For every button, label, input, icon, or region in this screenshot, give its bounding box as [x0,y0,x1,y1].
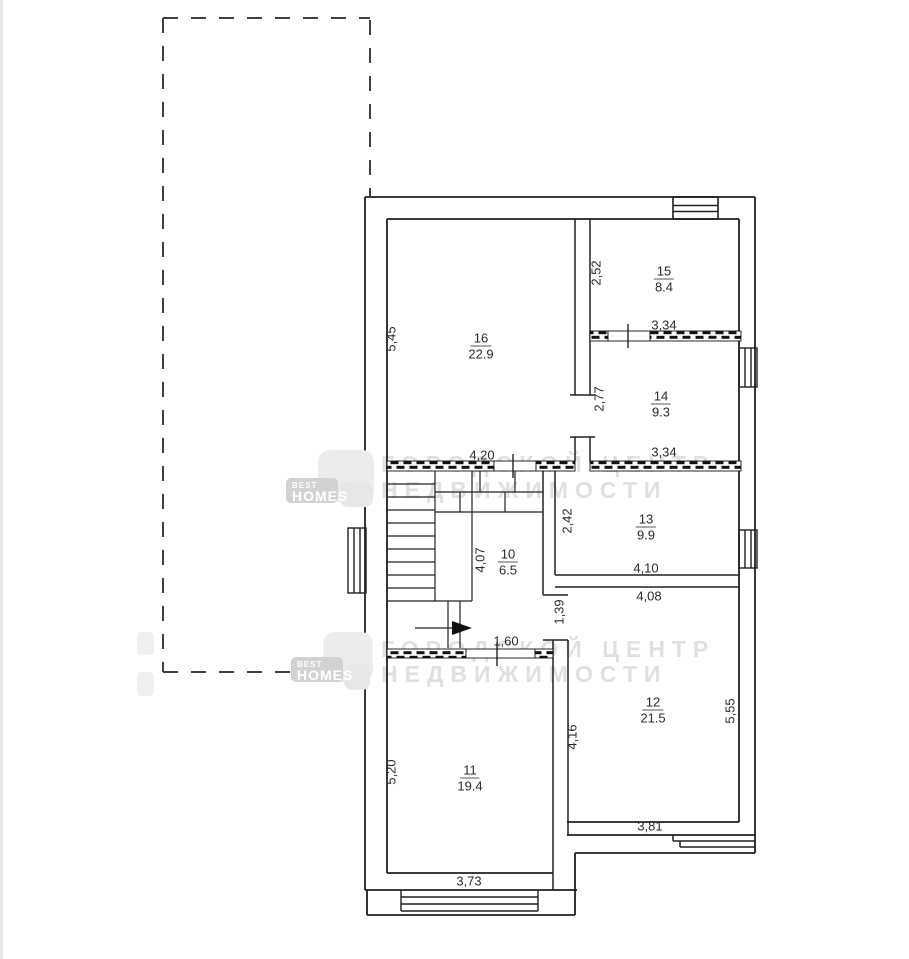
room-number: 15 [654,265,674,280]
floorplan-drawing [0,0,909,959]
dimension-label: 3,73 [456,874,481,889]
room-number: 11 [460,764,480,779]
dimension-label: 3,34 [651,445,676,460]
room-label-13: 13 9.9 [636,513,656,542]
dimension-label: 5,20 [384,759,399,784]
room-area: 8.4 [654,281,674,294]
logo-text-homes: HOMES [292,491,332,501]
room-number: 12 [643,696,663,711]
room-number: 14 [651,390,671,405]
logo-plate: BEST HOMES [286,478,338,503]
dimension-label: 3,81 [637,819,662,834]
dimension-label: 4,16 [565,724,580,749]
dashed-plot-outline [163,18,370,672]
dimension-label: 4,07 [473,547,488,572]
room-label-15: 15 8.4 [654,265,674,294]
room-area: 22.9 [468,348,493,361]
logo-text-homes: HOMES [297,670,337,680]
entrance-steps [673,835,755,847]
room-label-10: 10 6.5 [498,548,518,577]
dimension-label: 5,55 [723,698,738,723]
room-number: 16 [471,332,491,347]
room-label-16: 16 22.9 [468,332,493,361]
dimension-label: 2,77 [592,386,607,411]
interior-walls [543,219,739,890]
room-area: 19.4 [457,780,482,793]
room-number: 13 [636,513,656,528]
dimension-label: 2,52 [589,260,604,285]
dimension-label: 1,39 [552,599,567,624]
dimension-label: 4,20 [469,448,494,463]
staircase [387,471,543,648]
room-label-11: 11 19.4 [457,764,482,793]
room-label-12: 12 21.5 [640,696,665,725]
chimney-vent [673,197,718,219]
dimension-label: 5,45 [384,326,399,351]
dimension-label: 3,34 [651,318,676,333]
dimension-label: 1,60 [493,634,518,649]
room-area: 21.5 [640,712,665,725]
room-label-14: 14 9.3 [651,390,671,419]
room-area: 9.3 [651,406,671,419]
logo-plate: BEST HOMES [291,657,343,682]
dimension-label: 4,10 [633,561,658,576]
dimension-label: 4,08 [636,589,661,604]
exterior-walls [365,197,755,915]
room-area: 6.5 [498,564,518,577]
room-area: 9.9 [636,529,656,542]
dimension-label: 2,42 [560,508,575,533]
floorplan-page: ГОРОДСКОЙ ЦЕНТР НЕДВИЖИМОСТИ ГОРОДСКОЙ Ц… [0,0,909,959]
room-number: 10 [498,548,518,563]
stair-direction-arrow-icon [452,621,472,635]
